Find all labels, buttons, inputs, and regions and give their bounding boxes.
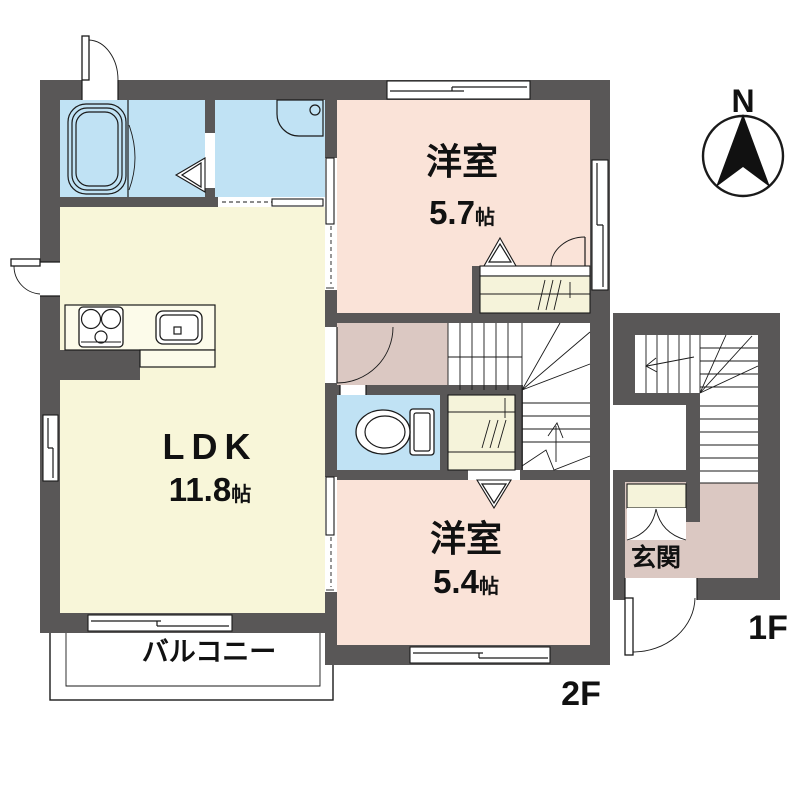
second-floor-label: 2F — [561, 675, 601, 713]
bedroom-upper-sliding-door — [325, 158, 337, 290]
bath-doorway — [205, 133, 215, 188]
bedroom-lower-bottom-window — [410, 647, 550, 663]
ldk-balcony-door — [88, 615, 232, 631]
door-leaf — [11, 259, 40, 266]
kitchen-side-door — [11, 259, 60, 296]
stove — [79, 307, 123, 347]
size-value: 5.4 — [433, 563, 480, 600]
door-swing-arc — [14, 266, 40, 294]
wall-left — [40, 80, 60, 633]
bedroom-lower-sliding-door — [325, 477, 337, 592]
wall-bedroom-lower-top — [325, 470, 590, 480]
bedroom-lower-label: 洋室 — [430, 518, 502, 559]
washroom-sliding-door — [218, 197, 325, 207]
bathroom-entry-door — [82, 36, 118, 100]
ldk-floor — [60, 207, 325, 613]
floor-plan-drawing: N 洋室 5.7帖 LDK 11.8帖 洋室 5.4帖 バルコニー 玄関 2F … — [0, 0, 800, 800]
entrance-label: 玄関 — [631, 543, 681, 572]
balcony-label: バルコニー — [142, 637, 276, 667]
wall-toilet-right — [440, 395, 448, 470]
size-unit: 帖 — [475, 206, 495, 229]
bedroom-upper-right-window — [592, 160, 608, 290]
shoe-cabinet — [627, 484, 686, 508]
size-value: 11.8 — [169, 471, 231, 508]
bedroom-lower-doorway — [468, 470, 520, 480]
kitchen-sink — [156, 311, 202, 344]
bedroom-upper-top-window — [387, 81, 530, 99]
wall-closet-stub — [472, 266, 480, 313]
size-unit: 帖 — [479, 575, 499, 598]
washroom-floor — [215, 100, 325, 197]
kitchen-island — [140, 350, 215, 367]
door-swing-arc — [633, 598, 695, 652]
toilet — [356, 409, 434, 455]
stairs-2f-floor — [448, 323, 590, 395]
wall-kitchen-stub — [60, 350, 140, 380]
stair-hall-floor — [700, 483, 758, 578]
size-value: 5.7 — [429, 194, 475, 231]
door-swing-arc — [89, 40, 118, 80]
entrance-floor-extension — [686, 522, 700, 578]
ldk-left-window — [43, 415, 58, 481]
door-leaf — [625, 598, 633, 655]
first-floor-label: 1F — [748, 609, 788, 647]
closet-hall — [448, 395, 515, 470]
door-leaf — [82, 36, 89, 80]
size-unit: 帖 — [231, 483, 251, 506]
compass-north-label: N — [731, 83, 754, 119]
compass: N — [703, 83, 783, 196]
wall-bedroom-upper-bottom — [325, 313, 590, 323]
bedroom-upper-label: 洋室 — [426, 141, 498, 182]
floor-plan-page: N 洋室 5.7帖 LDK 11.8帖 洋室 5.4帖 バルコニー 玄関 2F … — [0, 0, 800, 800]
ldk-label: LDK — [163, 426, 258, 467]
toilet-doorway — [340, 385, 366, 395]
entrance-door — [625, 578, 697, 655]
first-floor-block — [613, 313, 780, 655]
